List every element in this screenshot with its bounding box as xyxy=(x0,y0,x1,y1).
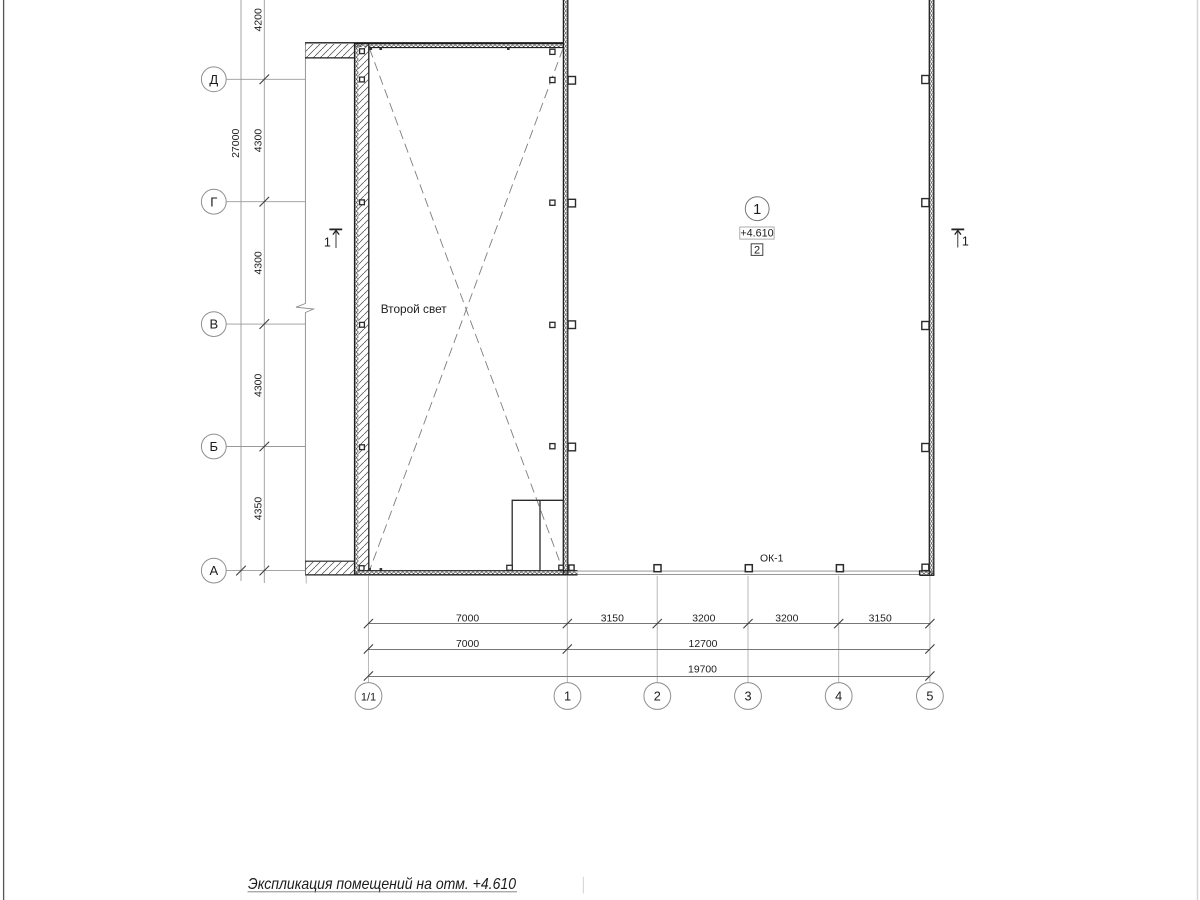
svg-text:3: 3 xyxy=(744,690,751,704)
svg-text:4: 4 xyxy=(835,690,842,704)
svg-text:7000: 7000 xyxy=(456,613,479,624)
svg-text:19700: 19700 xyxy=(688,665,717,676)
svg-text:12700: 12700 xyxy=(689,639,718,650)
svg-text:Д: Д xyxy=(209,72,218,87)
svg-text:А: А xyxy=(209,563,218,578)
svg-text:2: 2 xyxy=(754,245,760,257)
svg-text:1/1: 1/1 xyxy=(361,692,376,704)
svg-text:ОК-1: ОК-1 xyxy=(760,554,784,565)
svg-text:1: 1 xyxy=(324,235,331,249)
svg-text:5: 5 xyxy=(926,690,933,704)
svg-text:4300: 4300 xyxy=(252,129,264,153)
svg-text:Второй свет: Второй свет xyxy=(381,302,447,316)
svg-text:2: 2 xyxy=(654,690,661,704)
svg-text:3200: 3200 xyxy=(692,613,715,624)
svg-text:1: 1 xyxy=(753,202,761,218)
svg-text:Г: Г xyxy=(210,194,217,209)
svg-text:В: В xyxy=(209,317,218,332)
svg-text:7000: 7000 xyxy=(456,639,479,650)
svg-text:4300: 4300 xyxy=(252,251,264,275)
svg-text:4200: 4200 xyxy=(252,8,264,32)
svg-text:3150: 3150 xyxy=(869,613,892,624)
svg-text:3150: 3150 xyxy=(601,613,624,624)
svg-text:3200: 3200 xyxy=(775,613,798,624)
svg-text:1: 1 xyxy=(962,235,969,249)
svg-text:Экспликация помещений на отм.: Экспликация помещений на отм. +4.610 xyxy=(248,876,516,893)
svg-text:+4.610: +4.610 xyxy=(740,228,773,240)
svg-text:Б: Б xyxy=(210,439,219,454)
svg-text:1: 1 xyxy=(564,690,571,704)
svg-text:4300: 4300 xyxy=(252,373,264,397)
svg-text:4350: 4350 xyxy=(252,497,264,521)
svg-text:27000: 27000 xyxy=(230,129,242,158)
